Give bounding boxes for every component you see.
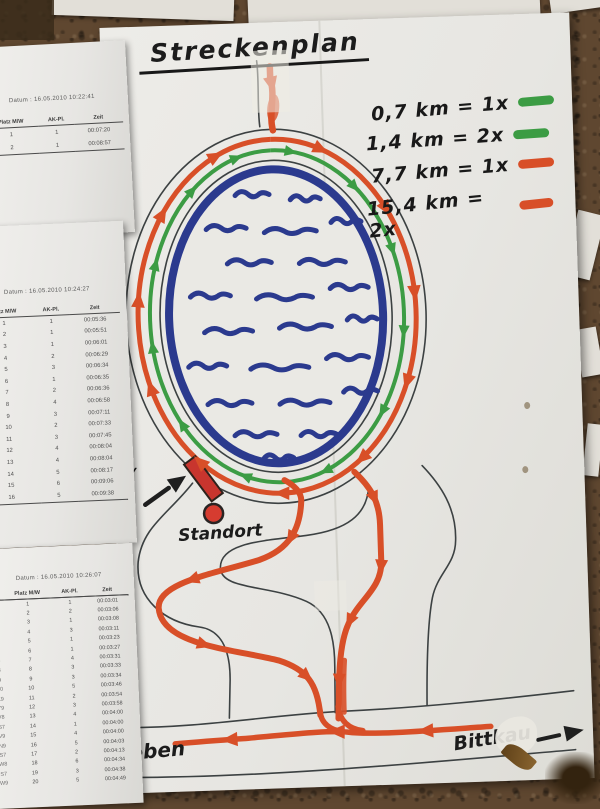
- route-arrow: [374, 559, 388, 575]
- sheet-datum-line: Datum : 16.05.2010 10:22:41: [0, 92, 128, 106]
- result-cell: 00:09:38: [77, 487, 128, 501]
- result-cell: 16: [0, 490, 41, 505]
- result-cell: 20: [9, 777, 61, 789]
- standort-dot: [204, 504, 224, 524]
- course-poster: Streckenplan 0,7 km = 1x 1,4 km = 2x 7,7…: [99, 12, 594, 793]
- route-arrow: [374, 403, 390, 419]
- tape-piece: [314, 580, 347, 611]
- datum-label: Datum :: [16, 575, 39, 582]
- legend-entry: 15,4 km = 2x: [366, 180, 556, 243]
- legend-swatch-green: [513, 127, 550, 138]
- cork-gap: [0, 0, 54, 40]
- legend-swatch-green: [518, 95, 555, 107]
- result-sheet-3: Datum : 16.05.2010 10:26:07 Platz M/WAK-…: [0, 543, 144, 809]
- route-legend: 0,7 km = 1x 1,4 km = 2x 7,7 km = 1x 15,4…: [364, 93, 559, 245]
- datum-label: Datum :: [9, 97, 32, 104]
- start-pointer-arrow: [145, 488, 170, 505]
- datum-value: 16.05.2010 10:26:07: [41, 572, 102, 581]
- result-cell: 5: [61, 775, 95, 786]
- result-cell: 00:08:57: [75, 135, 124, 151]
- cut-off-fragment: S7: [0, 769, 9, 779]
- route-arrow: [229, 151, 245, 166]
- route-doubled-stroke: [343, 660, 347, 712]
- sheet-datum-line: Datum : 16.05.2010 10:24:27: [0, 285, 126, 298]
- route-south-return: [155, 479, 321, 720]
- cork-scrap: [582, 423, 600, 476]
- route-arrow: [131, 291, 146, 308]
- route-arrow: [407, 285, 422, 302]
- result-sheet-2: Datum : 16.05.2010 10:24:27 Platz M/WAK-…: [0, 221, 137, 550]
- tape-piece: [250, 50, 290, 113]
- result-table: Platz M/WAK-Pl.Zeit1100:05:362100:05:513…: [0, 303, 128, 506]
- result-cell: 00:04:49: [94, 773, 137, 784]
- legend-swatch-red: [519, 197, 554, 209]
- result-table: Platz M/WAK-Pl.Zeit01100:03:0132200:03:0…: [0, 585, 137, 789]
- result-cell: 2: [0, 140, 40, 156]
- legend-swatch-red: [518, 157, 555, 169]
- sheet-datum-line: Datum : 16.05.2010 10:26:07: [0, 571, 134, 584]
- legend-label: 1,4 km = 2x: [365, 124, 505, 155]
- legend-label: 7,7 km = 1x: [370, 154, 510, 188]
- datum-value: 16.05.2010 10:22:41: [34, 94, 95, 103]
- bittkau-arrowhead: [563, 722, 585, 742]
- route-arrow: [274, 486, 290, 500]
- datum-value: 16.05.2010 10:24:27: [29, 286, 90, 295]
- route-arrow: [398, 325, 410, 339]
- result-table: Platz M/WAK-Pl.Zeit1100:07:202100:08:57: [0, 112, 124, 156]
- legend-label: 15,4 km = 2x: [366, 184, 513, 242]
- road-edge-right: [419, 465, 461, 706]
- cut-off-fragment: W9: [0, 779, 10, 789]
- route-arrow: [318, 463, 334, 478]
- result-cell: 1: [39, 138, 75, 153]
- legend-entry: 1,4 km = 2x: [365, 121, 550, 155]
- result-sheet-1: Datum : 16.05.2010 10:22:41 Platz M/WAK-…: [0, 40, 135, 240]
- cork-stain: [545, 752, 600, 804]
- route-arrow: [220, 732, 237, 747]
- result-cell: 5: [40, 489, 78, 503]
- route-arrow: [416, 723, 433, 738]
- bittkau-arrow-shaft: [538, 735, 559, 740]
- pinned-paper-top-left: [52, 0, 235, 21]
- cut-off-fragment: W8: [0, 760, 9, 770]
- datum-label: Datum :: [4, 289, 27, 296]
